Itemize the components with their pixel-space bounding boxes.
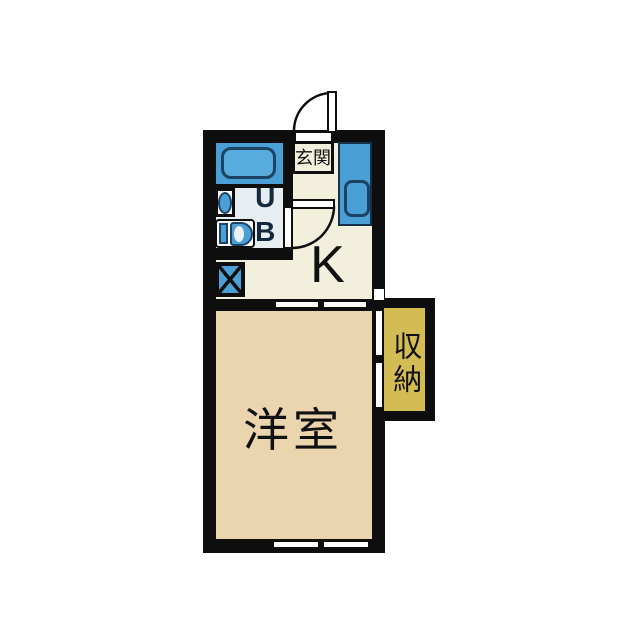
closet-sliding-door-panel-1 (374, 309, 384, 357)
kitchen-label: K (300, 237, 355, 293)
bathtub-icon (221, 147, 276, 179)
window-panel-1 (272, 540, 320, 549)
entrance-label: 玄関 (293, 145, 333, 171)
unit-bath-label: UB (248, 185, 282, 247)
kitchen-sink-icon (344, 180, 370, 217)
washbasin-bowl (218, 192, 232, 214)
sliding-door-panel-2 (322, 300, 368, 309)
western-room-label: 洋室 (228, 403, 358, 458)
wall-gap (374, 289, 384, 300)
bath-door-opening (283, 206, 293, 249)
closet-label: 収納 (386, 325, 423, 403)
entrance-door-opening (294, 131, 333, 143)
floor-plan: 玄関 UB K 洋室 収納 (0, 0, 639, 640)
wall-left (203, 130, 216, 553)
toilet-tank (219, 223, 228, 244)
closet-sliding-door-panel-2 (374, 361, 384, 409)
entrance-door-swing-icon (294, 93, 332, 131)
sliding-door-panel-1 (274, 300, 320, 309)
entrance-door-leaf (328, 92, 336, 132)
washbasin-icon (215, 188, 235, 217)
washing-machine-space-icon (215, 262, 245, 297)
window-panel-2 (322, 540, 370, 549)
